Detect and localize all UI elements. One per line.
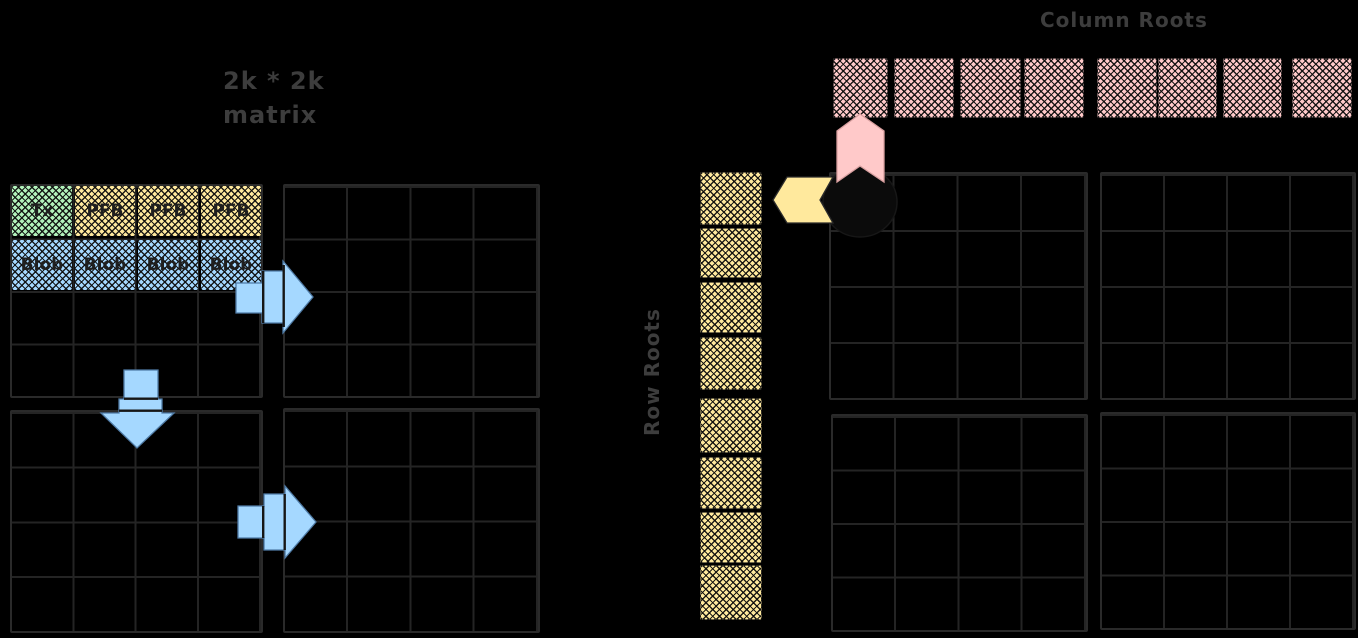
root-pointers-layer xyxy=(0,0,1358,638)
column-roots-label: Column Roots xyxy=(1040,8,1208,32)
whiteboard-canvas: 2k * 2kmatrix Tx PFB PFB PFB Blob Blob B… xyxy=(0,0,1358,638)
matrix-size-note: 2k * 2kmatrix xyxy=(223,64,325,132)
matrix-size-note-line2: matrix xyxy=(223,101,317,129)
row-roots-label: Row Roots xyxy=(640,316,664,436)
matrix-size-note-line1: 2k * 2k xyxy=(223,67,325,95)
corner-blob-icon xyxy=(823,167,897,237)
